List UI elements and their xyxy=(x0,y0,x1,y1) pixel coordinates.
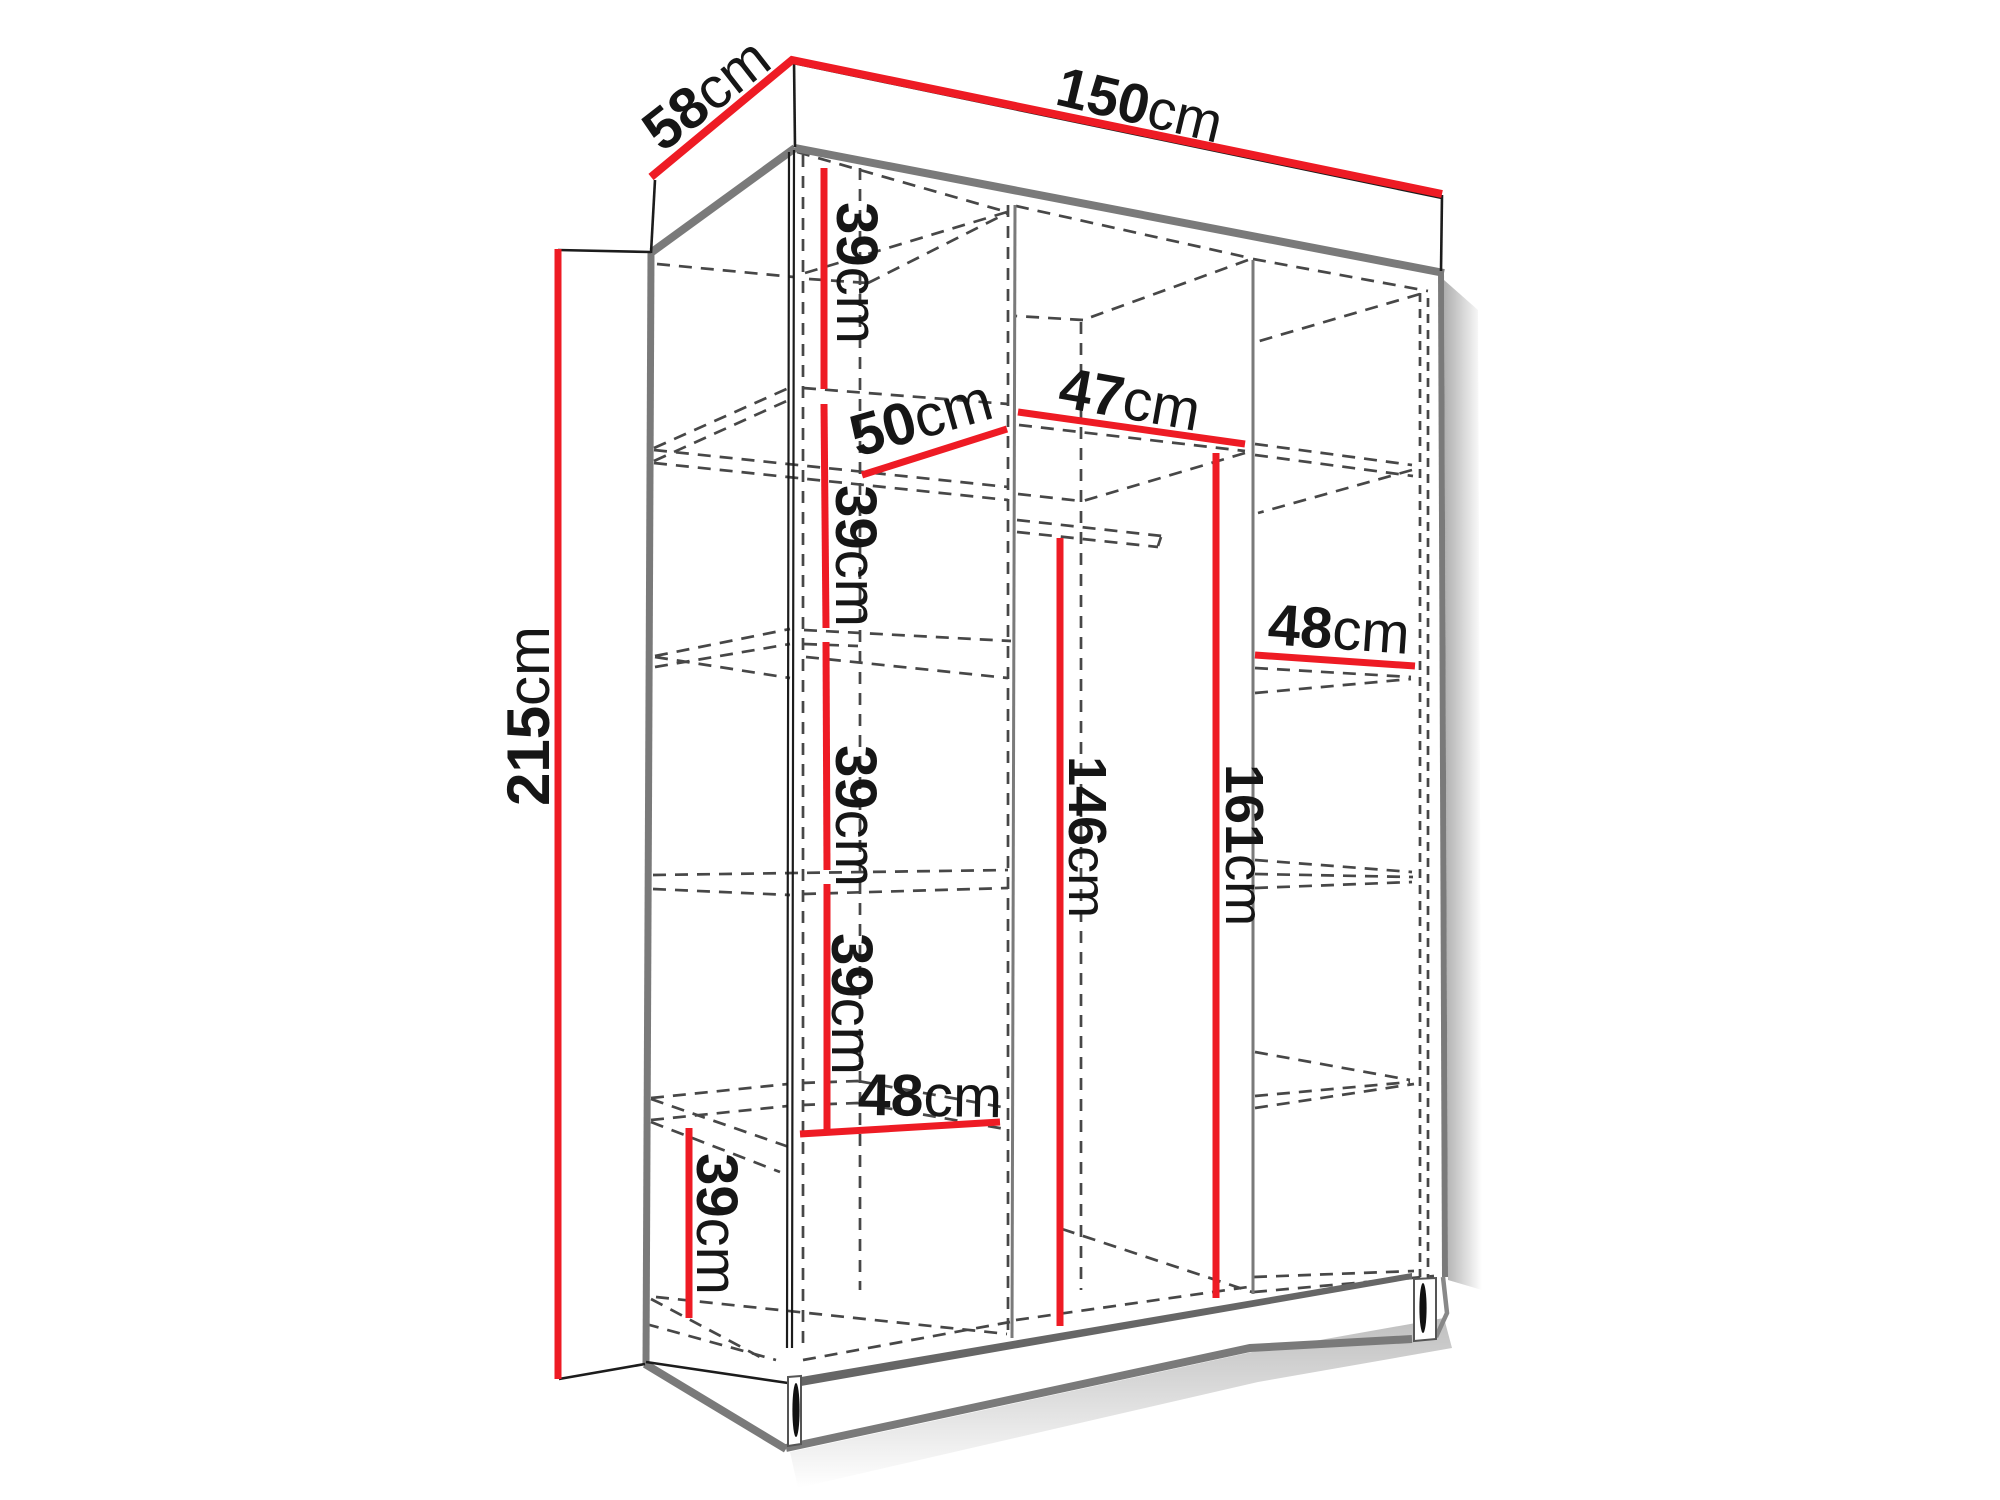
svg-text:161cm: 161cm xyxy=(1214,764,1274,926)
svg-text:39cm: 39cm xyxy=(685,1153,750,1295)
svg-text:48cm: 48cm xyxy=(857,1062,1002,1131)
svg-text:39cm: 39cm xyxy=(820,933,885,1075)
svg-text:39cm: 39cm xyxy=(824,745,889,887)
svg-text:215cm: 215cm xyxy=(495,626,562,806)
svg-text:146cm: 146cm xyxy=(1057,756,1117,918)
svg-text:39cm: 39cm xyxy=(824,485,889,627)
svg-text:48cm: 48cm xyxy=(1266,592,1412,667)
svg-text:39cm: 39cm xyxy=(825,202,890,344)
